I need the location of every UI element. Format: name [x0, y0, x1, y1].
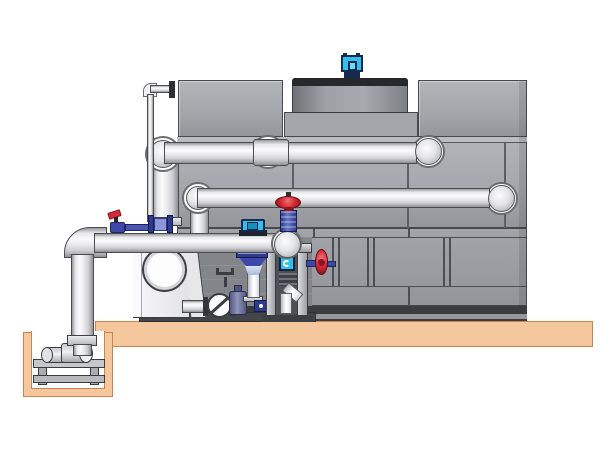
sump-pump-motor-face — [41, 347, 53, 363]
upper-inlet-header-pipe — [164, 142, 417, 164]
fan-deck — [284, 112, 418, 137]
panel-seam — [408, 287, 410, 306]
panel-seam — [367, 238, 369, 286]
pump-discharge-header-pipe — [94, 233, 282, 253]
makeup-line-cap — [169, 81, 175, 98]
tower-edge-shade — [519, 81, 527, 306]
sample-valve-body — [110, 222, 125, 233]
flow-sensor-window — [247, 222, 258, 230]
drain-funnel-tube — [247, 273, 260, 298]
upper-right-elbow-dome — [415, 138, 442, 165]
side-valve-stub — [327, 261, 336, 267]
level-indicator-glyph — [283, 260, 290, 267]
side-valve-hub — [318, 259, 325, 266]
cooling-tower-diagram — [0, 0, 600, 450]
makeup-water-line — [147, 94, 154, 222]
tower-panel-top-right — [418, 80, 527, 137]
header-end-cap — [274, 231, 301, 258]
panel-seam — [443, 238, 445, 286]
overflow-elbow-vertical — [280, 293, 292, 314]
mid-right-elbow-dome — [488, 185, 515, 212]
pipe-sleeve-coupling — [253, 139, 289, 166]
fan-motor-window — [348, 61, 357, 71]
frame-base — [262, 315, 313, 322]
suction-riser-tail — [73, 344, 92, 356]
globe-valve-body — [280, 210, 297, 232]
globe-valve-hub — [284, 207, 293, 211]
instrument-frame-post — [266, 252, 276, 318]
drain-tap-stem — [224, 277, 227, 287]
pump-inlet-opening — [142, 247, 187, 292]
fan-motor-base — [344, 71, 360, 78]
fan-cowl-rim — [292, 78, 408, 86]
drain-tap-tip — [231, 268, 234, 273]
gate-valve — [229, 291, 247, 315]
feed-fitting-body — [154, 218, 167, 231]
panel-seam — [338, 238, 340, 286]
sensor-block-dot — [259, 304, 263, 308]
pump-bench-bar — [33, 375, 105, 383]
panel-seam — [373, 238, 375, 286]
panel-seam — [313, 229, 315, 237]
drain-tap-tip — [216, 268, 219, 273]
sump-suction-riser — [71, 254, 94, 340]
pump-housing-front-panel — [133, 242, 142, 317]
panel-seam — [449, 238, 451, 286]
equipment-platform — [95, 321, 593, 347]
tower-panel-top-left — [178, 80, 283, 137]
feed-fitting-flange — [167, 215, 173, 233]
panel-seam — [408, 229, 410, 237]
middle-inlet-header-pipe — [197, 188, 490, 208]
makeup-line-stub — [150, 85, 170, 93]
